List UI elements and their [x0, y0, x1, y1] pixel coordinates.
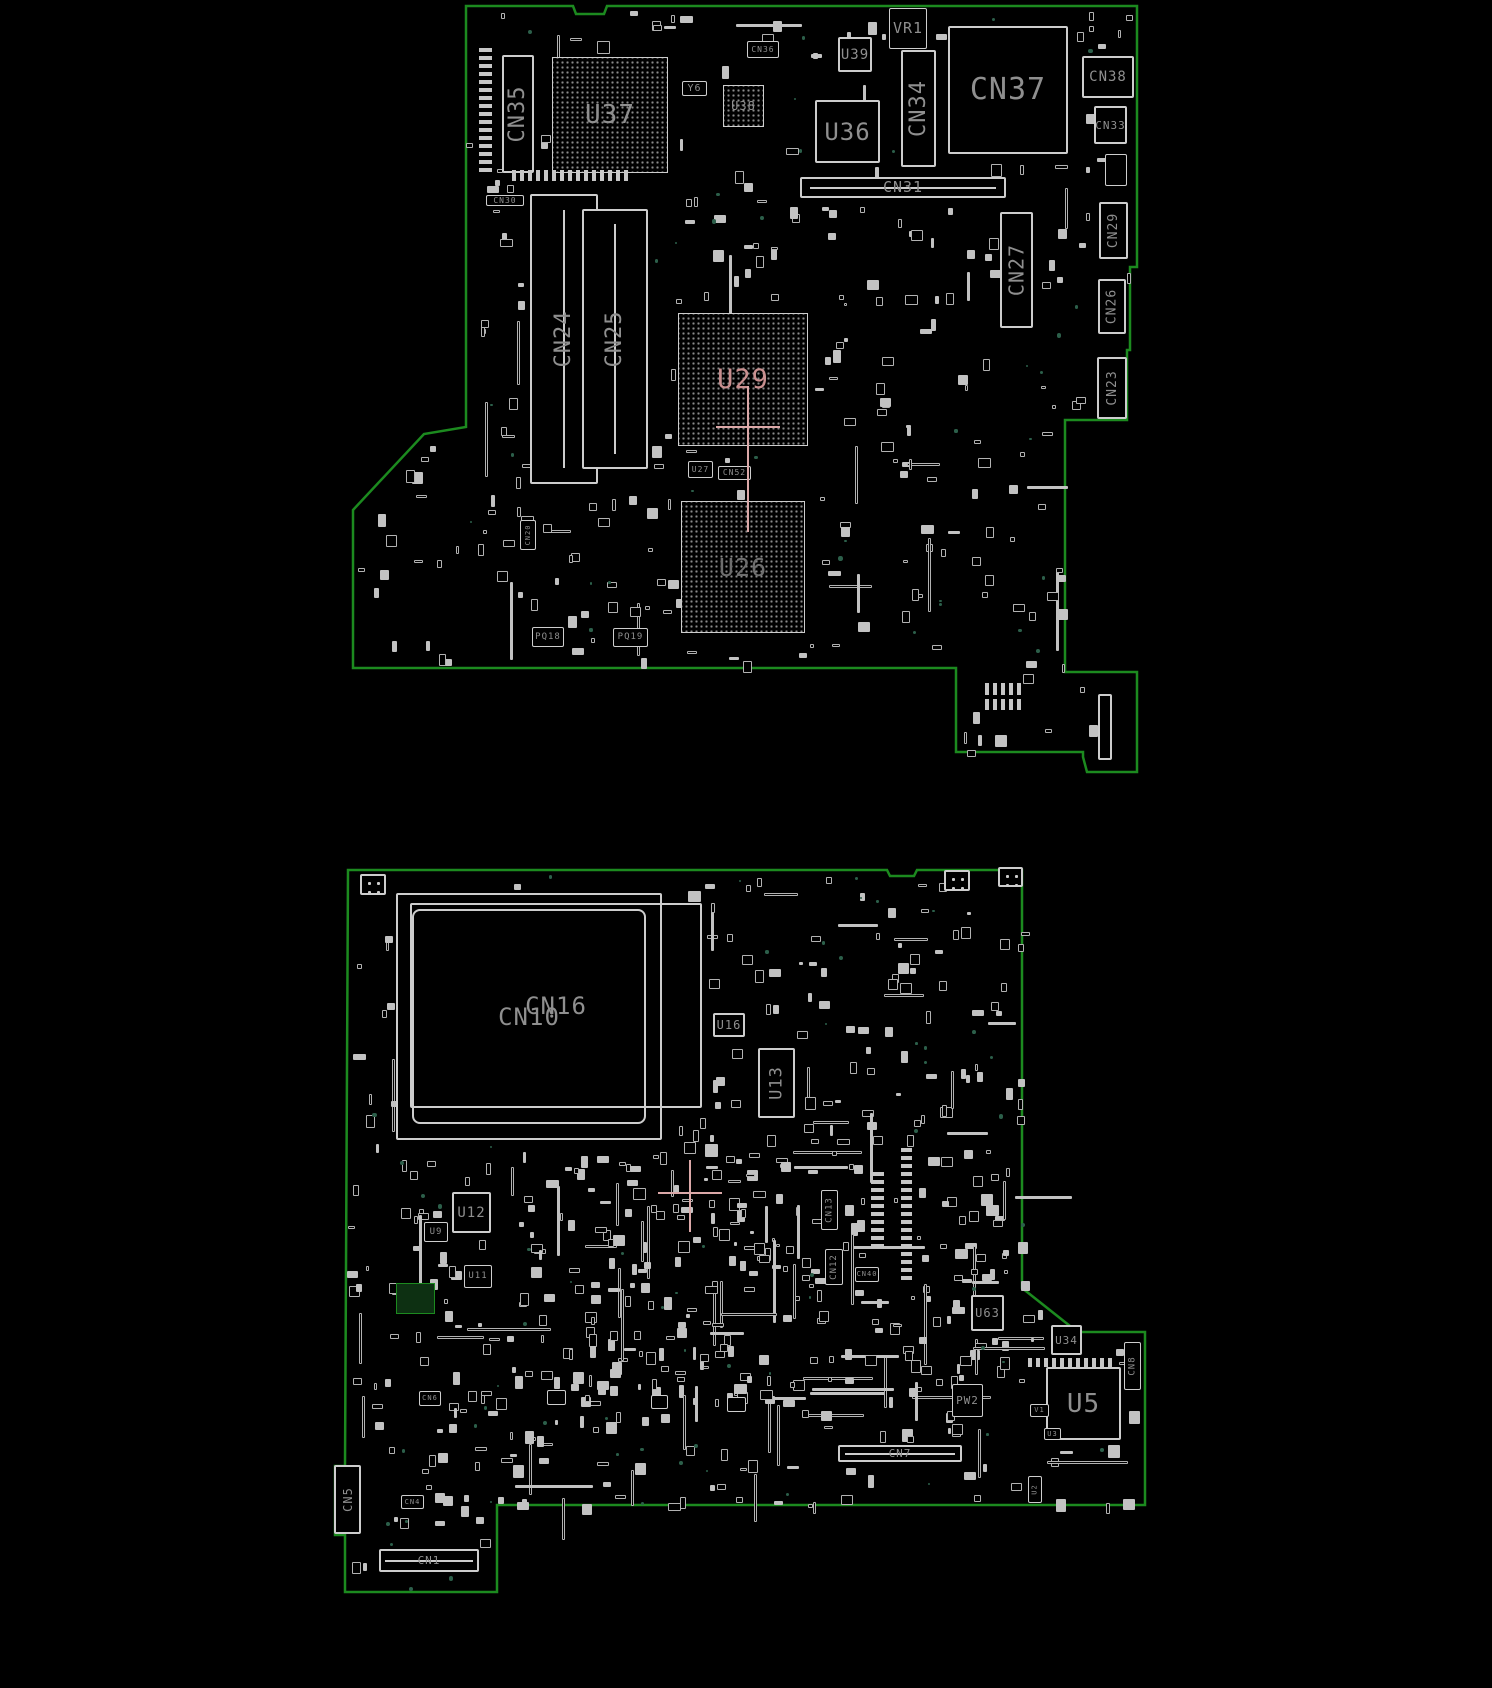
component-u38: U38 — [723, 85, 764, 127]
smd-part — [905, 1351, 913, 1361]
smd-part — [900, 471, 908, 478]
part — [985, 683, 1021, 695]
smd-part — [771, 294, 780, 300]
smd-part — [776, 1194, 783, 1204]
connector-cn36: CN36 — [747, 41, 779, 58]
smd-part — [946, 293, 954, 305]
smd-part — [811, 54, 822, 58]
test-point — [712, 219, 716, 223]
connector-cn38: CN38 — [1082, 56, 1134, 98]
smd-part — [513, 1465, 524, 1477]
smd-part — [568, 1220, 576, 1231]
silkscreen-label: PQ19 — [614, 629, 647, 646]
smd-part — [853, 1246, 925, 1249]
smd-part — [876, 383, 885, 395]
smd-part — [935, 296, 939, 303]
smd-part — [374, 588, 379, 598]
smd-part — [693, 1130, 699, 1142]
smd-part — [921, 1366, 933, 1376]
silkscreen-label: U27 — [689, 462, 712, 477]
smd-part — [437, 1429, 443, 1433]
silkscreen-label: U11 — [465, 1266, 491, 1287]
test-point — [691, 490, 693, 492]
smd-part — [931, 238, 934, 248]
smd-part — [591, 638, 595, 643]
smd-part — [1086, 167, 1090, 174]
test-point — [528, 30, 532, 34]
smd-part — [638, 1384, 641, 1389]
smd-part — [828, 233, 836, 240]
smd-part — [638, 1269, 647, 1273]
smd-part — [565, 1167, 572, 1170]
smd-part — [794, 1166, 847, 1169]
smd-part — [767, 1376, 772, 1387]
smd-part — [582, 1504, 592, 1515]
smd-part — [363, 1563, 367, 1572]
smd-part — [961, 1069, 966, 1078]
test-point — [675, 1292, 678, 1295]
smd-part — [719, 1229, 729, 1241]
smd-part — [675, 1257, 681, 1267]
smd-part — [661, 1414, 670, 1422]
smd-part — [510, 582, 513, 660]
part — [901, 1148, 912, 1280]
smd-part — [1038, 1310, 1043, 1320]
smd-part — [435, 1493, 444, 1503]
component-u63: U63 — [971, 1295, 1004, 1331]
smd-part — [741, 1209, 746, 1218]
smd-part — [914, 1120, 921, 1127]
smd-part — [632, 1264, 637, 1275]
smd-part — [973, 712, 980, 724]
smd-part — [1023, 1315, 1035, 1323]
smd-part — [531, 1267, 542, 1278]
smd-part — [947, 1316, 951, 1324]
smd-part — [787, 1466, 799, 1470]
smd-part — [1052, 405, 1056, 410]
smd-part — [881, 442, 894, 451]
silkscreen-label: CN37 — [950, 28, 1066, 152]
silkscreen-label: U63 — [973, 1297, 1002, 1329]
smd-part — [597, 1462, 608, 1466]
smd-part — [694, 197, 698, 208]
smd-part — [821, 968, 828, 977]
silkscreen-label: CN38 — [1084, 58, 1132, 96]
smd-part — [539, 1250, 542, 1260]
smd-part — [771, 247, 778, 250]
smd-part — [721, 1449, 728, 1461]
smd-part — [353, 1054, 366, 1061]
connector-cn31: CN31 — [800, 177, 1006, 198]
smd-part — [1127, 273, 1132, 284]
smd-part — [1077, 32, 1083, 42]
smd-part — [783, 1315, 792, 1322]
test-point — [913, 631, 916, 634]
smd-part — [721, 1313, 778, 1316]
smd-part — [362, 1396, 365, 1438]
smd-part — [677, 1377, 685, 1382]
smd-part — [507, 185, 514, 194]
smd-part — [941, 549, 946, 558]
smd-part — [967, 912, 970, 915]
smd-part — [759, 1255, 770, 1262]
smd-part — [746, 1174, 755, 1178]
smd-part — [1079, 243, 1086, 248]
smd-part — [711, 903, 715, 913]
smd-part — [671, 369, 676, 381]
smd-part — [356, 1284, 362, 1291]
smd-part — [591, 1295, 602, 1303]
silkscreen-label: CN30 — [487, 196, 523, 205]
smd-part — [666, 1336, 675, 1340]
smd-part — [888, 979, 899, 990]
smd-part — [598, 518, 610, 527]
silkscreen-label: CN36 — [748, 42, 778, 57]
test-point — [641, 1502, 644, 1505]
smd-part — [589, 1375, 592, 1387]
smd-part — [680, 139, 684, 151]
smd-part — [414, 1216, 418, 1224]
smd-part — [919, 1188, 926, 1198]
component-u37: U37 — [552, 57, 668, 173]
smd-part — [528, 1205, 535, 1212]
smd-part — [429, 1455, 436, 1467]
smd-part — [445, 1311, 453, 1323]
smd-part — [705, 1144, 718, 1156]
silkscreen-label: CN7 — [840, 1447, 960, 1460]
part — [479, 47, 492, 172]
smd-part — [366, 1266, 369, 1271]
smd-part — [936, 34, 946, 40]
smd-part — [647, 508, 659, 518]
fiducial-mark — [944, 870, 970, 891]
smd-part — [438, 1264, 448, 1267]
smd-part — [872, 1319, 879, 1324]
smd-part — [786, 1246, 793, 1254]
smd-part — [543, 524, 552, 532]
smd-part — [797, 1205, 800, 1260]
part — [1098, 694, 1112, 760]
smd-part — [644, 1262, 650, 1268]
test-point — [589, 628, 592, 631]
test-point — [390, 1543, 393, 1546]
smd-part — [978, 735, 982, 747]
smd-part — [630, 607, 641, 618]
smd-part — [1065, 188, 1068, 230]
smd-part — [998, 1337, 1044, 1340]
smd-part — [390, 1334, 399, 1339]
test-point — [527, 1248, 531, 1252]
smd-part — [867, 1068, 875, 1075]
smd-part — [828, 571, 840, 577]
smd-part — [686, 199, 692, 206]
smd-part — [1047, 592, 1059, 602]
smd-part — [668, 580, 679, 590]
smd-part — [503, 540, 514, 547]
smd-part — [828, 1377, 833, 1382]
smd-part — [1116, 1349, 1123, 1356]
smd-part — [882, 34, 886, 40]
fiducial-mark — [360, 874, 386, 895]
smd-part — [911, 1296, 915, 1301]
smd-part — [704, 292, 708, 301]
silkscreen-label: CN27 — [961, 256, 1073, 285]
smd-part — [829, 377, 838, 380]
smd-part — [481, 1395, 485, 1404]
smd-part — [631, 1470, 634, 1507]
silkscreen-label: U16 — [715, 1015, 743, 1035]
smd-part — [715, 1399, 719, 1406]
smd-part — [753, 243, 759, 249]
smd-part — [668, 499, 671, 510]
test-point — [608, 581, 611, 584]
smd-part — [857, 1220, 865, 1232]
smd-part — [394, 1517, 398, 1522]
smd-part — [1126, 15, 1133, 22]
smd-part — [952, 1307, 964, 1314]
smd-part — [819, 1001, 830, 1009]
smd-part — [786, 148, 799, 155]
smd-part — [374, 1383, 377, 1390]
smd-part — [734, 1384, 747, 1394]
connector-cn16: CN16 — [410, 903, 702, 1108]
smd-part — [495, 180, 500, 186]
smd-part — [905, 295, 918, 305]
smd-part — [515, 1485, 593, 1488]
smd-part — [783, 1400, 794, 1408]
smd-part — [498, 1497, 503, 1504]
smd-part — [585, 1395, 590, 1402]
test-point — [438, 1204, 442, 1208]
smd-part — [575, 1285, 584, 1294]
smd-part — [486, 1163, 491, 1176]
smd-part — [971, 1269, 977, 1275]
smd-part — [777, 1405, 780, 1466]
smd-part — [757, 878, 762, 887]
smd-part — [580, 1416, 584, 1428]
smd-part — [1062, 664, 1065, 673]
smd-part — [893, 1324, 902, 1327]
smd-part — [624, 1348, 636, 1351]
smd-part — [765, 1206, 768, 1243]
smd-part — [608, 1339, 615, 1351]
smd-part — [808, 993, 811, 1003]
smd-part — [1021, 932, 1030, 935]
smd-part — [652, 1379, 657, 1390]
smd-part — [1089, 12, 1094, 21]
smd-part — [653, 25, 663, 30]
smd-part — [608, 602, 617, 613]
smd-part — [1038, 504, 1046, 509]
smd-part — [353, 1378, 362, 1385]
silkscreen-label: CN8 — [1110, 1359, 1156, 1374]
smd-part — [440, 1252, 446, 1264]
smd-part — [866, 1047, 872, 1054]
smd-part — [1006, 1168, 1011, 1176]
smd-part — [732, 1049, 743, 1059]
smd-part — [1041, 386, 1045, 389]
smd-part — [993, 1220, 1003, 1227]
smd-part — [986, 1205, 998, 1216]
smd-part — [974, 1495, 981, 1502]
smd-part — [369, 1094, 372, 1105]
component-u34: U34 — [1051, 1325, 1082, 1355]
smd-part — [1055, 165, 1068, 169]
smd-part — [726, 1156, 735, 1163]
test-point — [511, 453, 514, 456]
smd-part — [680, 16, 692, 24]
smd-part — [544, 1294, 556, 1303]
test-point — [605, 1417, 608, 1420]
smd-part — [589, 503, 597, 512]
connector-cn29: CN29 — [1099, 202, 1128, 259]
smd-part — [426, 1485, 431, 1490]
test-point — [986, 1433, 989, 1436]
smd-part — [857, 574, 860, 613]
silkscreen-label: U12 — [454, 1194, 489, 1231]
smd-part — [734, 276, 739, 287]
smd-part — [392, 1059, 395, 1132]
smd-part — [1080, 687, 1085, 693]
smd-part — [454, 1408, 457, 1419]
smd-part — [435, 1521, 445, 1526]
connector-cn34: CN34 — [901, 50, 936, 167]
smd-part — [907, 1135, 914, 1147]
smd-part — [754, 1474, 757, 1522]
smd-part — [755, 970, 764, 983]
smd-part — [572, 648, 584, 655]
smd-part — [713, 1227, 718, 1237]
board-outlines — [0, 0, 1492, 1688]
smd-part — [1021, 1281, 1030, 1291]
smd-part — [743, 661, 752, 674]
test-point — [409, 1587, 413, 1591]
smd-part — [811, 936, 821, 942]
smd-part — [630, 1166, 641, 1172]
smd-part — [983, 359, 990, 370]
smd-part — [783, 1266, 788, 1272]
smd-part — [844, 303, 847, 306]
smd-part — [977, 1072, 983, 1083]
smd-part — [475, 1462, 481, 1471]
silkscreen-label: Y6 — [683, 82, 706, 95]
smd-part — [657, 579, 666, 585]
smd-part — [920, 329, 932, 334]
test-point — [684, 1349, 686, 1351]
crosshair-mark — [689, 1160, 691, 1232]
smd-part — [964, 1472, 975, 1479]
connector-cn33: CN33 — [1094, 106, 1127, 144]
smd-part — [808, 1414, 865, 1417]
component-u39: U39 — [838, 37, 872, 72]
test-point — [421, 1194, 425, 1198]
smd-part — [589, 1334, 597, 1347]
test-point — [839, 956, 843, 960]
smd-part — [926, 1011, 931, 1024]
smd-part — [570, 38, 581, 42]
smd-part — [823, 1101, 833, 1106]
smd-part — [679, 1126, 683, 1137]
smd-part — [352, 1562, 362, 1574]
smd-part — [1018, 1242, 1028, 1254]
smd-part — [991, 164, 1002, 177]
component-u26: U26 — [681, 501, 805, 633]
smd-part — [703, 1366, 709, 1369]
smd-part — [531, 599, 538, 611]
smd-part — [693, 1237, 701, 1243]
smd-part — [673, 1204, 679, 1213]
smd-part — [659, 1348, 663, 1361]
smd-part — [1015, 1196, 1072, 1199]
smd-part — [705, 1286, 717, 1294]
smd-part — [641, 658, 647, 669]
smd-part — [525, 1431, 534, 1444]
smd-part — [917, 1236, 920, 1240]
smd-part — [581, 611, 589, 618]
smd-part — [711, 1213, 716, 1224]
smd-part — [837, 1139, 850, 1145]
smd-part — [744, 183, 752, 192]
smd-part — [918, 884, 926, 887]
smd-part — [460, 1409, 467, 1413]
smd-part — [926, 1296, 931, 1301]
smd-part — [861, 1301, 889, 1304]
smd-part — [928, 538, 931, 613]
smd-part — [481, 1391, 492, 1396]
smd-part — [483, 530, 486, 534]
smd-part — [475, 1447, 487, 1451]
smd-part — [382, 1010, 387, 1017]
smd-part — [597, 1381, 608, 1390]
smd-part — [829, 585, 872, 588]
smd-part — [975, 1064, 978, 1071]
smd-part — [896, 1093, 901, 1096]
fiducial-mark — [998, 867, 1023, 887]
smd-part — [1047, 1461, 1128, 1464]
connector-cn8: CN8 — [1124, 1342, 1141, 1390]
smd-part — [705, 884, 715, 888]
smd-part — [1000, 939, 1011, 951]
test-point — [549, 875, 553, 879]
smd-part — [1003, 1181, 1006, 1220]
smd-part — [876, 933, 880, 940]
smd-part — [1013, 604, 1025, 612]
silkscreen-label: PQ18 — [533, 628, 563, 646]
smd-part — [600, 1201, 612, 1205]
smd-part — [928, 1157, 940, 1166]
smd-part — [525, 1371, 533, 1377]
smd-part — [568, 616, 577, 628]
smd-part — [461, 1506, 469, 1517]
silkscreen-label: U9 — [425, 1223, 447, 1241]
smd-part — [729, 657, 739, 661]
smd-part — [487, 186, 498, 192]
smd-part — [826, 877, 832, 885]
smd-part — [766, 1004, 770, 1015]
smd-part — [773, 1005, 779, 1014]
smd-part — [663, 610, 673, 615]
smd-part — [380, 570, 389, 580]
smd-part — [810, 644, 814, 648]
smd-part — [918, 594, 923, 598]
smd-part — [813, 1121, 848, 1124]
smd-part — [430, 446, 436, 452]
smd-part — [616, 1412, 620, 1423]
smd-part — [996, 1011, 1002, 1015]
smd-part — [808, 1170, 818, 1174]
smd-part — [512, 1367, 516, 1373]
smd-part — [709, 1200, 715, 1207]
